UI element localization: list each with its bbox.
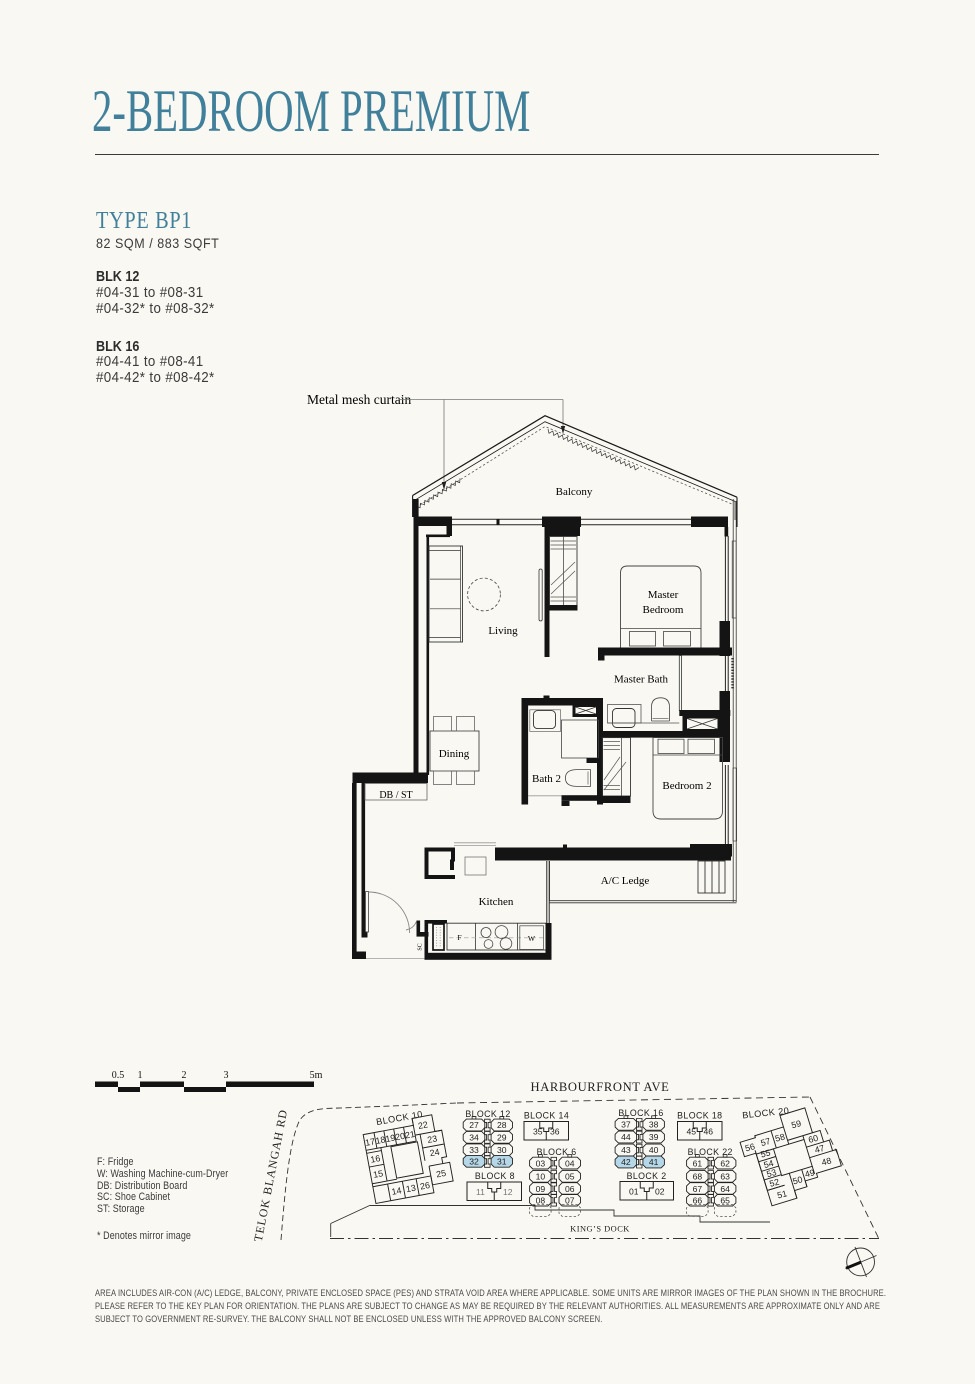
svg-text:SC: SC bbox=[418, 943, 424, 950]
svg-text:KING’S DOCK: KING’S DOCK bbox=[570, 1225, 630, 1234]
svg-text:05: 05 bbox=[565, 1172, 575, 1182]
svg-text:15: 15 bbox=[372, 1168, 384, 1180]
svg-text:BLOCK 16: BLOCK 16 bbox=[618, 1108, 663, 1118]
svg-text:28: 28 bbox=[497, 1120, 507, 1130]
svg-text:04: 04 bbox=[565, 1158, 575, 1168]
svg-text:32: 32 bbox=[469, 1157, 479, 1167]
svg-text:61: 61 bbox=[693, 1158, 703, 1168]
svg-text:12: 12 bbox=[503, 1187, 513, 1197]
svg-text:50: 50 bbox=[792, 1174, 804, 1186]
svg-text:10: 10 bbox=[536, 1172, 546, 1182]
svg-text:Metal mesh curtain: Metal mesh curtain bbox=[307, 392, 411, 407]
svg-text:64: 64 bbox=[720, 1184, 730, 1194]
svg-text:1: 1 bbox=[138, 1070, 143, 1081]
svg-text:Dining: Dining bbox=[439, 748, 470, 760]
svg-text:21: 21 bbox=[404, 1129, 416, 1141]
svg-text:25: 25 bbox=[435, 1168, 447, 1180]
svg-text:BLOCK 18: BLOCK 18 bbox=[677, 1111, 722, 1121]
svg-text:24: 24 bbox=[429, 1147, 441, 1159]
svg-text:BLOCK 2: BLOCK 2 bbox=[627, 1171, 667, 1181]
svg-text:W: W bbox=[528, 934, 536, 943]
svg-text:60: 60 bbox=[807, 1133, 819, 1145]
svg-text:HARBOURFRONT AVE: HARBOURFRONT AVE bbox=[531, 1080, 670, 1094]
svg-text:33: 33 bbox=[469, 1145, 479, 1155]
svg-text:Bath 2: Bath 2 bbox=[532, 773, 561, 785]
svg-text:39: 39 bbox=[649, 1132, 659, 1142]
svg-text:51: 51 bbox=[776, 1188, 788, 1200]
svg-text:26: 26 bbox=[419, 1180, 431, 1192]
svg-text:Master Bath: Master Bath bbox=[614, 674, 669, 686]
svg-text:62: 62 bbox=[720, 1158, 730, 1168]
svg-text:44: 44 bbox=[621, 1132, 631, 1142]
svg-text:Living: Living bbox=[488, 625, 518, 637]
svg-text:45: 45 bbox=[687, 1126, 697, 1136]
svg-text:65: 65 bbox=[720, 1195, 730, 1205]
svg-text:37: 37 bbox=[621, 1120, 631, 1130]
svg-text:34: 34 bbox=[469, 1133, 479, 1143]
svg-text:BLOCK 14: BLOCK 14 bbox=[524, 1111, 569, 1121]
svg-text:31: 31 bbox=[497, 1157, 507, 1167]
svg-text:35: 35 bbox=[533, 1126, 543, 1136]
svg-text:57: 57 bbox=[760, 1136, 772, 1148]
svg-text:Bedroom: Bedroom bbox=[643, 604, 684, 616]
svg-text:67: 67 bbox=[693, 1184, 703, 1194]
svg-text:36: 36 bbox=[550, 1126, 560, 1136]
svg-text:DB / ST: DB / ST bbox=[379, 790, 412, 801]
svg-text:07: 07 bbox=[565, 1195, 575, 1205]
svg-text:63: 63 bbox=[720, 1172, 730, 1182]
svg-text:30: 30 bbox=[497, 1145, 507, 1155]
svg-text:49: 49 bbox=[804, 1167, 816, 1179]
svg-text:40: 40 bbox=[649, 1145, 659, 1155]
svg-text:Master: Master bbox=[648, 589, 679, 601]
svg-text:Kitchen: Kitchen bbox=[479, 896, 514, 908]
svg-text:BLOCK 22: BLOCK 22 bbox=[688, 1147, 733, 1157]
svg-text:66: 66 bbox=[693, 1195, 703, 1205]
svg-text:38: 38 bbox=[649, 1120, 659, 1130]
svg-text:13: 13 bbox=[405, 1183, 417, 1195]
svg-text:16: 16 bbox=[370, 1153, 382, 1165]
svg-text:TELOK BLANGAH RD: TELOK BLANGAH RD bbox=[251, 1108, 290, 1243]
svg-text:11: 11 bbox=[476, 1187, 485, 1197]
svg-text:68: 68 bbox=[693, 1172, 703, 1182]
svg-text:43: 43 bbox=[621, 1145, 631, 1155]
svg-text:BLOCK 8: BLOCK 8 bbox=[475, 1171, 515, 1181]
svg-text:01: 01 bbox=[629, 1186, 639, 1196]
svg-text:48: 48 bbox=[820, 1155, 832, 1167]
svg-text:41: 41 bbox=[649, 1157, 659, 1167]
svg-text:42: 42 bbox=[621, 1157, 631, 1167]
svg-text:0.5: 0.5 bbox=[112, 1070, 125, 1081]
svg-text:27: 27 bbox=[469, 1120, 479, 1130]
svg-text:3: 3 bbox=[224, 1070, 229, 1081]
svg-text:29: 29 bbox=[497, 1133, 507, 1143]
svg-text:56: 56 bbox=[744, 1141, 756, 1153]
svg-text:Bedroom 2: Bedroom 2 bbox=[662, 780, 711, 792]
svg-text:08: 08 bbox=[536, 1195, 546, 1205]
svg-text:58: 58 bbox=[774, 1131, 786, 1143]
svg-text:59: 59 bbox=[790, 1118, 802, 1130]
svg-text:03: 03 bbox=[536, 1158, 546, 1168]
svg-text:46: 46 bbox=[703, 1126, 713, 1136]
svg-text:06: 06 bbox=[565, 1184, 575, 1194]
svg-text:02: 02 bbox=[655, 1186, 665, 1196]
svg-text:2: 2 bbox=[182, 1070, 187, 1081]
svg-text:BLOCK 20: BLOCK 20 bbox=[742, 1106, 790, 1121]
svg-text:F: F bbox=[457, 933, 461, 942]
svg-text:A/C Ledge: A/C Ledge bbox=[601, 875, 650, 887]
svg-text:22: 22 bbox=[417, 1119, 429, 1131]
svg-text:09: 09 bbox=[536, 1184, 546, 1194]
svg-text:Balcony: Balcony bbox=[556, 486, 593, 498]
svg-text:23: 23 bbox=[426, 1133, 438, 1145]
svg-text:14: 14 bbox=[391, 1185, 403, 1197]
svg-text:5m: 5m bbox=[310, 1070, 323, 1081]
